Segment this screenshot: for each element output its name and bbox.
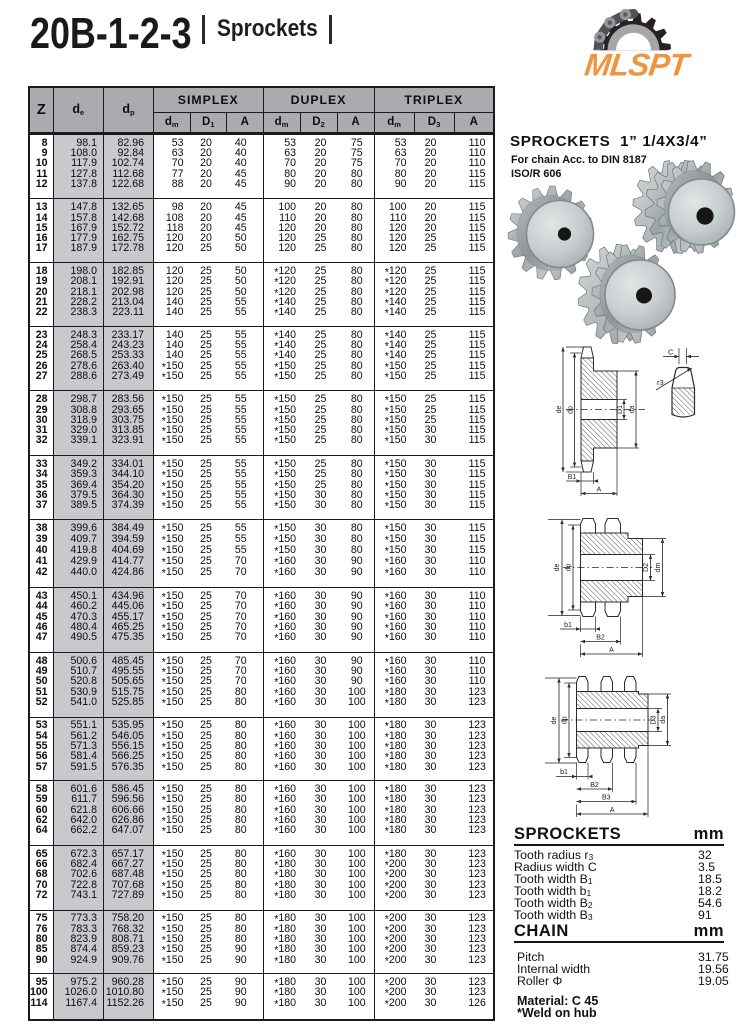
svg-text:A: A — [597, 486, 602, 493]
svg-text:B2: B2 — [596, 634, 605, 641]
svg-text:de: de — [554, 564, 561, 572]
svg-text:D2: D2 — [643, 563, 650, 572]
svg-text:da: da — [660, 716, 667, 724]
svg-text:dm: dm — [655, 562, 662, 572]
svg-text:A: A — [610, 807, 615, 814]
svg-text:D3: D3 — [651, 715, 658, 724]
svg-text:dp: dp — [566, 564, 573, 572]
svg-text:r3: r3 — [657, 378, 664, 387]
svg-text:de: de — [551, 717, 558, 725]
svg-text:dp: dp — [568, 406, 575, 414]
svg-text:b1: b1 — [560, 769, 568, 776]
svg-text:B3: B3 — [602, 794, 611, 801]
svg-text:de: de — [556, 406, 563, 414]
svg-text:B2: B2 — [590, 782, 599, 789]
svg-text:da: da — [629, 406, 636, 414]
svg-text:B1: B1 — [568, 474, 577, 481]
svg-text:b1: b1 — [564, 622, 572, 629]
svg-text:MLSPT: MLSPT — [583, 47, 694, 83]
svg-text:D1: D1 — [617, 405, 624, 414]
svg-text:dp: dp — [562, 716, 569, 724]
svg-text:C: C — [668, 348, 674, 357]
svg-text:A: A — [609, 647, 614, 654]
